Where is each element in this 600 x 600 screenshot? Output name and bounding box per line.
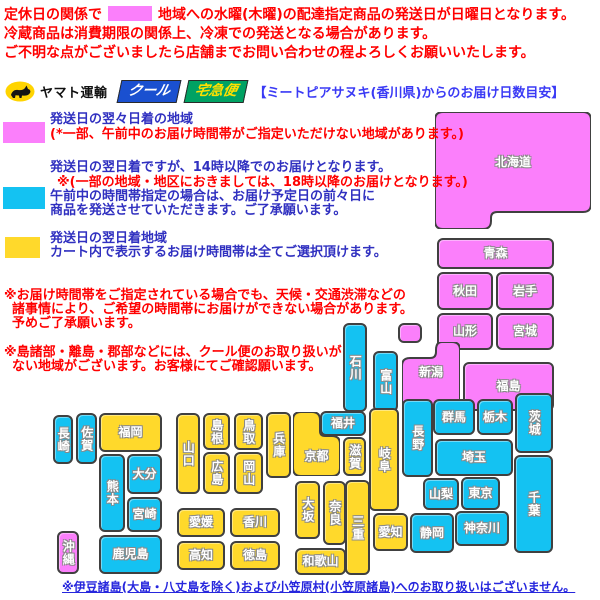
prefecture-yamaguchi: 山口 bbox=[176, 413, 200, 494]
prefecture-fukuoka: 福岡 bbox=[99, 413, 162, 452]
prefecture-toyama: 富山 bbox=[373, 351, 398, 412]
carrier-logo-row: ヤマト運輸 クール 宅急便 【ミートピアサヌキ(香川県)からのお届け日数目安】 bbox=[5, 79, 564, 104]
prefecture-hyogo: 兵庫 bbox=[266, 412, 291, 478]
note1-line3: 予めご了承願います。 bbox=[12, 317, 141, 331]
prefecture-tottori: 鳥取 bbox=[234, 413, 263, 450]
note2-line1: ※島諸部・離島・郡部などには、クール便のお取り扱いが bbox=[4, 346, 342, 360]
prefecture-kanagawa: 神奈川 bbox=[455, 511, 509, 546]
legend-swatch-yellow bbox=[5, 237, 40, 258]
prefecture-label-kyoto: 京都 bbox=[293, 447, 340, 464]
prefecture-nagano: 長野 bbox=[402, 399, 433, 477]
prefecture-ehime: 愛媛 bbox=[177, 508, 225, 537]
prefecture-shiga: 滋賀 bbox=[343, 437, 366, 476]
notice-line2: 冷蔵商品は消費期限の関係上、冷凍での発送となる場合があります。 bbox=[4, 25, 575, 44]
prefecture-mie: 三重 bbox=[345, 480, 370, 575]
prefecture-ibaraki: 茨城 bbox=[515, 393, 553, 453]
legend-cyan-line3: 商品を発送させていただきます。ご了承願います。 bbox=[50, 204, 346, 218]
prefecture-okayama: 岡山 bbox=[234, 452, 263, 494]
notice-line3: ご不明な点がございましたら店舗までお問い合わせの程よろしくお願いいたします。 bbox=[4, 44, 575, 63]
legend-yellow-line2: カート内で表示するお届け時間帯は全てご選択頂けます。 bbox=[50, 246, 387, 260]
islands-exception-link[interactable]: ※伊豆諸島(大島・八丈島を除く)および小笠原村(小笠原諸島)へのお取り扱いはござ… bbox=[62, 578, 575, 595]
prefecture-aichi: 愛知 bbox=[373, 513, 408, 551]
magenta-inline-swatch bbox=[108, 6, 152, 21]
prefecture-label-niigata: 新潟 bbox=[402, 363, 460, 380]
prefecture-iwate: 岩手 bbox=[496, 272, 554, 310]
notice-line1-pre: 定休日の関係で bbox=[4, 7, 102, 23]
legend-swatch-magenta bbox=[3, 122, 45, 143]
prefecture-gifu: 岐阜 bbox=[369, 408, 399, 511]
legend-cyan-line2: 午前中の時間帯指定の場合は、お届け予定日の前々日に bbox=[50, 190, 375, 204]
prefecture-kagawa: 香川 bbox=[230, 508, 280, 537]
top-notice: 定休日の関係で地域への水曜(木曜)の配達指定商品の発送日が日曜日となります。 冷… bbox=[4, 6, 575, 63]
takkyubin-badge: 宅急便 bbox=[183, 80, 248, 103]
prefecture-nara: 奈良 bbox=[323, 481, 346, 545]
prefecture-saitama: 埼玉 bbox=[435, 439, 513, 476]
prefecture-tokushima: 徳島 bbox=[230, 541, 280, 570]
legend-magenta-title: 発送日の翌々日着の地域 bbox=[50, 113, 193, 127]
prefecture-okinawa: 沖縄 bbox=[57, 531, 79, 574]
prefecture-shizuoka: 静岡 bbox=[410, 513, 454, 553]
legend-cyan-note: ※(一部の地域・地区におきましては、18時以降のお届けとなります。) bbox=[57, 176, 468, 190]
cool-badge: クール bbox=[116, 80, 181, 103]
prefecture-kochi: 高知 bbox=[177, 541, 225, 570]
note1-line1: ※お届け時間帯をご指定されている場合でも、天候・交通渋滞などの bbox=[4, 289, 406, 303]
prefecture-osaka: 大坂 bbox=[295, 481, 320, 539]
prefecture-saga: 佐賀 bbox=[76, 413, 97, 464]
prefecture-miyagi: 宮城 bbox=[496, 313, 554, 350]
prefecture-gunma: 群馬 bbox=[433, 399, 475, 435]
carrier-name: ヤマト運輸 bbox=[40, 82, 108, 101]
prefecture-shimane: 島根 bbox=[203, 413, 230, 450]
legend-yellow-title: 発送日の翌日着地域 bbox=[50, 232, 167, 246]
legend-magenta-note: (*一部、午前中のお届け時間帯がご指定いただけない地域があります。) bbox=[50, 128, 464, 142]
prefecture-tokyo: 東京 bbox=[461, 477, 500, 510]
prefecture-akita: 秋田 bbox=[437, 272, 493, 310]
prefecture-sado bbox=[398, 323, 422, 343]
notice-line1-post: 地域への水曜(木曜)の配達指定商品の発送日が日曜日となります。 bbox=[158, 7, 575, 23]
notice-line1: 定休日の関係で地域への水曜(木曜)の配達指定商品の発送日が日曜日となります。 bbox=[4, 6, 575, 25]
prefecture-wakayama: 和歌山 bbox=[295, 548, 346, 575]
prefecture-oita: 大分 bbox=[127, 454, 162, 494]
legend-cyan-line1: 発送日の翌日着ですが、14時以降でのお届けとなります。 bbox=[50, 161, 391, 175]
prefecture-miyazaki: 宮崎 bbox=[127, 497, 162, 532]
prefecture-ishikawa: 石川 bbox=[343, 323, 367, 412]
note2-line2: ない地域がございます。お客様にてご確認願います。 bbox=[12, 360, 321, 374]
prefecture-aomori: 青森 bbox=[437, 238, 554, 269]
prefecture-yamanashi: 山梨 bbox=[423, 478, 459, 510]
yamato-cat-logo-icon bbox=[5, 81, 35, 102]
prefecture-nagasaki: 長崎 bbox=[53, 415, 73, 464]
prefecture-kagoshima: 鹿児島 bbox=[99, 535, 162, 574]
page-title: 【ミートピアサヌキ(香川県)からのお届け日数目安】 bbox=[254, 82, 565, 101]
legend-swatch-cyan bbox=[3, 187, 45, 209]
prefecture-hiroshima: 広島 bbox=[203, 452, 230, 494]
prefecture-kyoto bbox=[293, 412, 340, 476]
note1-line2: 諸事情により、ご希望の時間帯にお届けができない場合があります。 bbox=[12, 303, 413, 317]
prefecture-tochigi: 栃木 bbox=[477, 399, 513, 435]
prefecture-kumamoto: 熊本 bbox=[99, 454, 125, 532]
prefecture-chiba: 千葉 bbox=[514, 455, 553, 553]
prefecture-label-hokkaido: 北海道 bbox=[435, 153, 591, 170]
